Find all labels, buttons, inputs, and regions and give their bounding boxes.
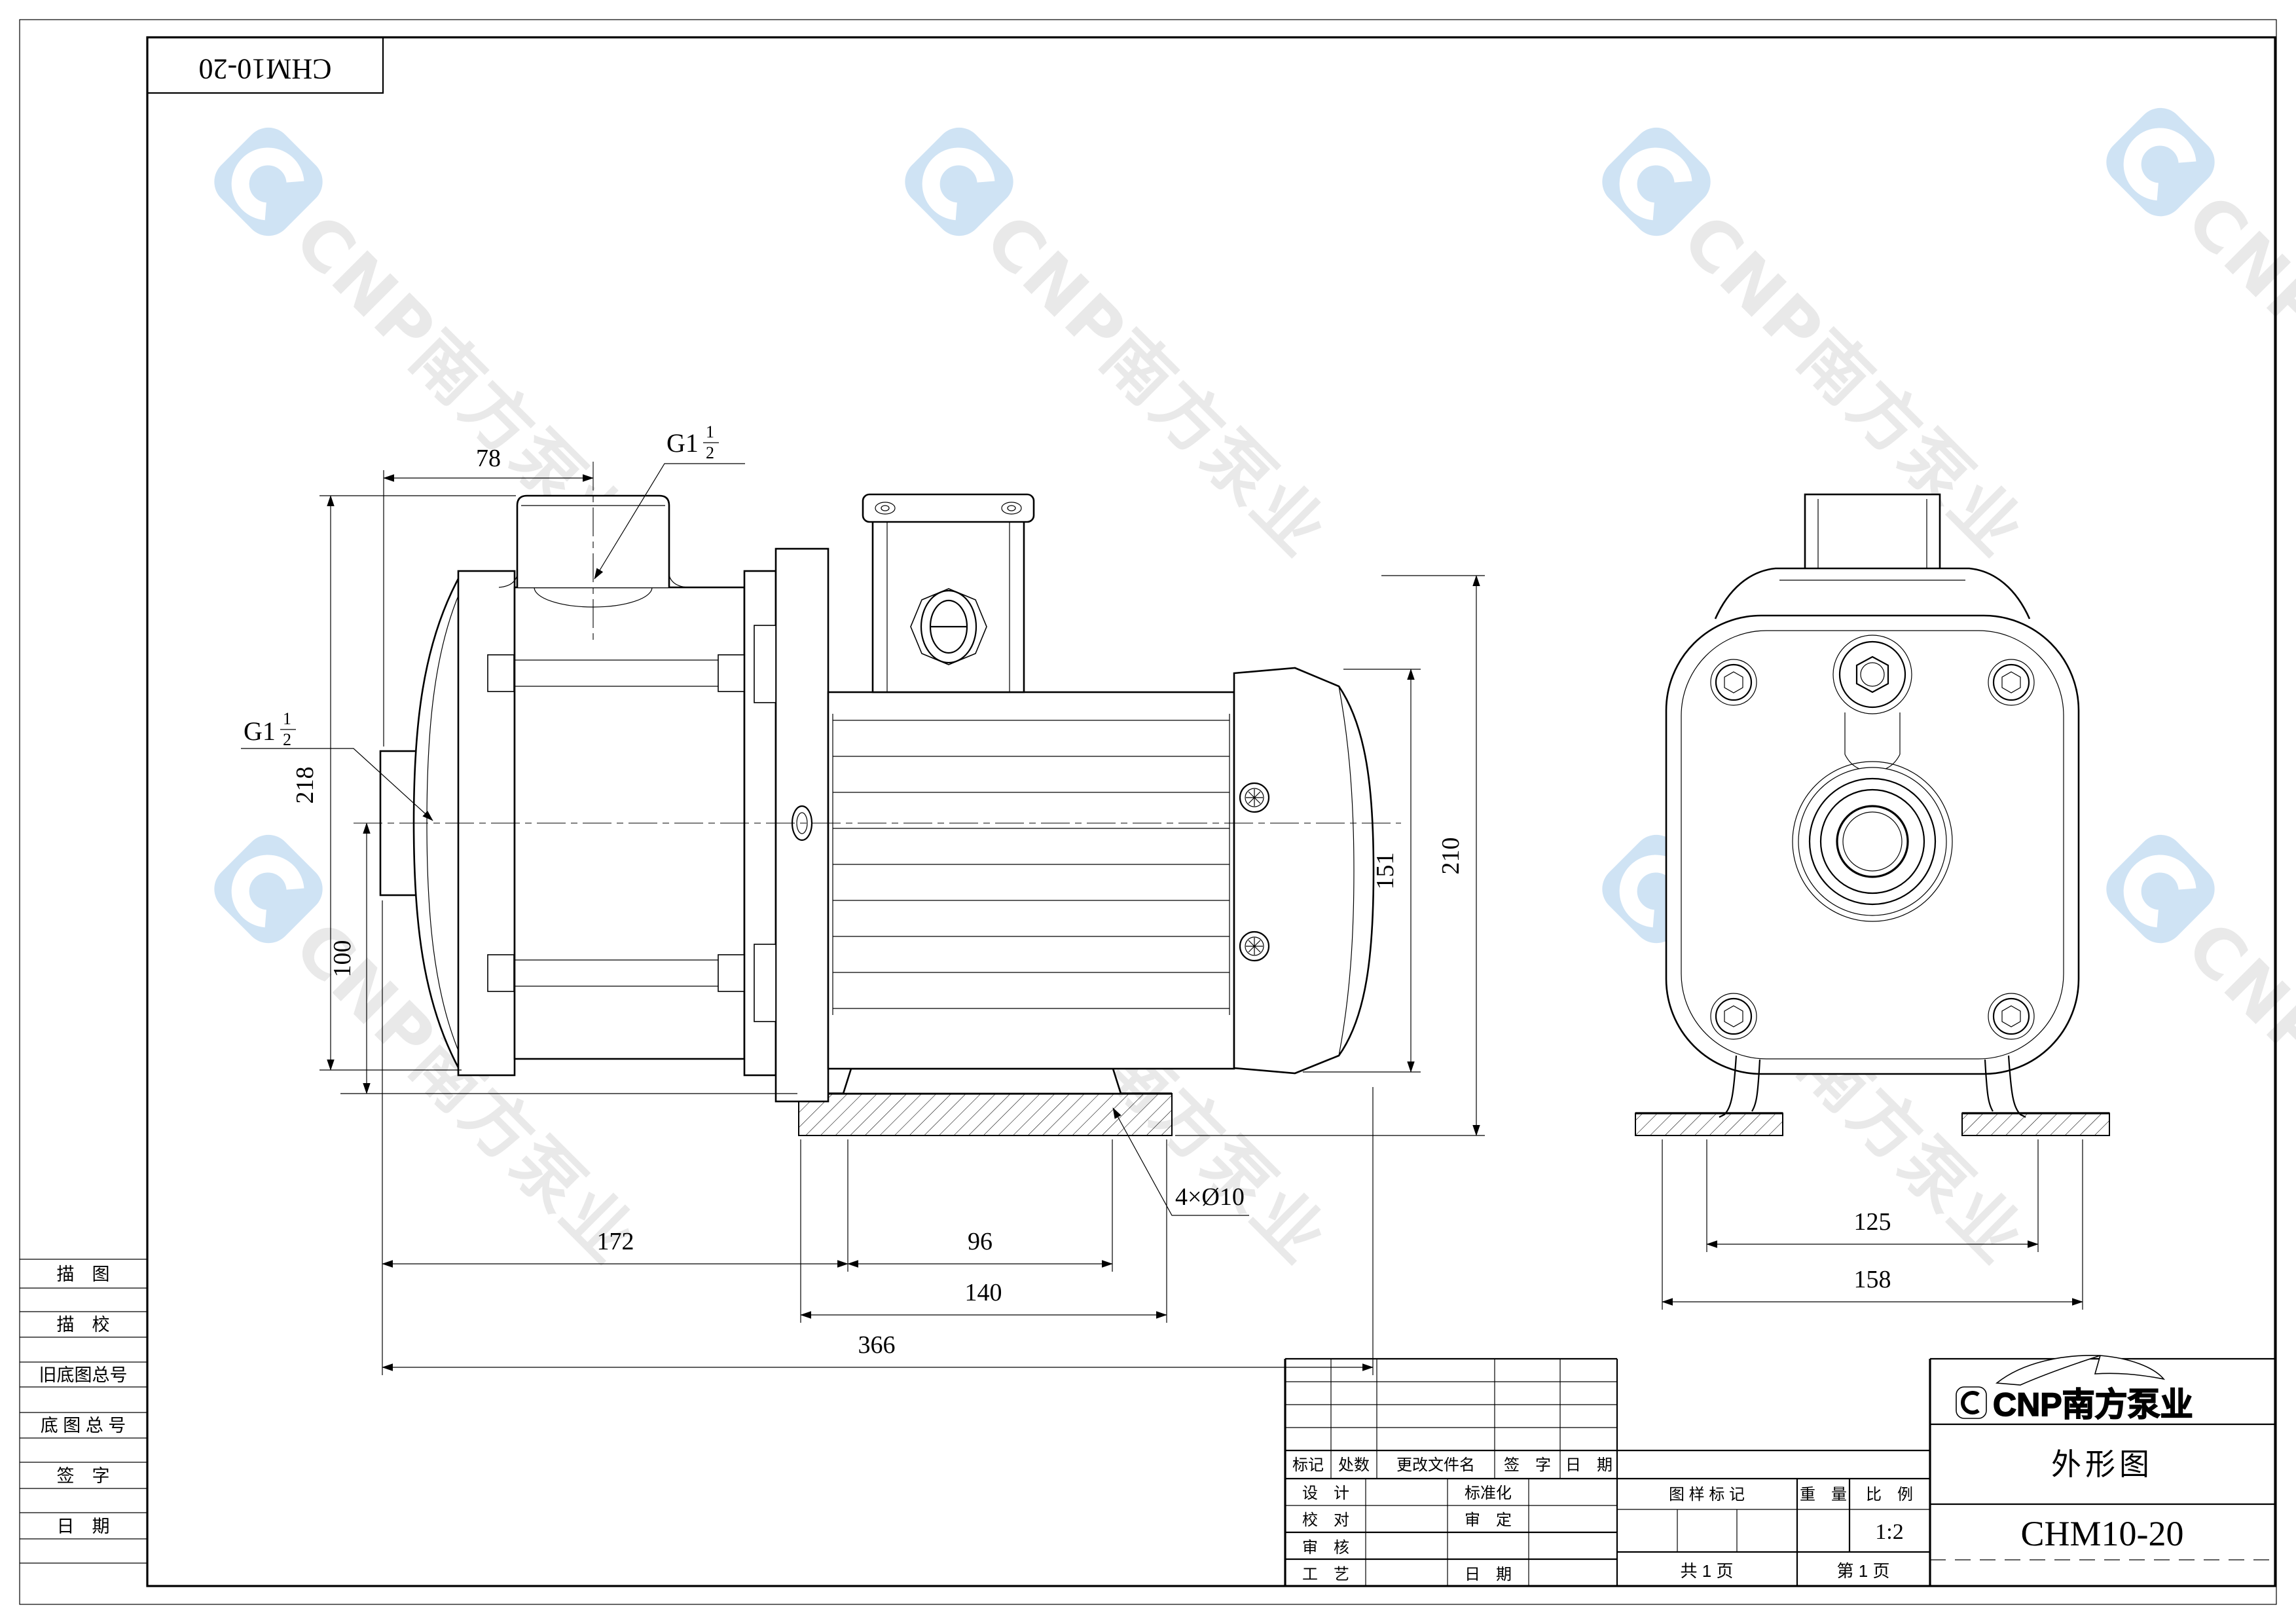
left-table-row-label: 日 期 (57, 1517, 110, 1536)
cnp-logo-text: CNP南方泵业 (1993, 1386, 2193, 1423)
form-check: 校 对 (1302, 1511, 1349, 1529)
brand-section: CNP南方泵业 外形图 CHM10-20 (1930, 1356, 2275, 1560)
dim-172: 172 (597, 1228, 634, 1255)
title-block: 标记 处数 更改文件名 签 字 日 期 设 计 校 对 审 核 工 艺 标准化 … (1285, 1356, 2275, 1586)
revision-header-mark: 标记 (1292, 1456, 1324, 1474)
watermark: CNP南方泵业 (2096, 98, 2296, 553)
left-table-row-label: 旧底图总号 (39, 1365, 128, 1385)
cnp-logo: CNP南方泵业 (1956, 1356, 2193, 1423)
dim-366: 366 (858, 1331, 896, 1359)
pump-end-view (1635, 494, 2109, 1135)
stamp-page-no: 第 1 页 (1837, 1561, 1890, 1581)
revision-header-file: 更改文件名 (1396, 1456, 1475, 1474)
doc-title: 外形图 (2051, 1447, 2153, 1481)
model-number: CHM10-20 (2020, 1514, 2183, 1553)
revision-header-date: 日 期 (1565, 1456, 1613, 1474)
left-table-row-label: 描 校 (57, 1315, 110, 1335)
dim-158: 158 (1854, 1266, 1891, 1293)
dim-100: 100 (329, 940, 356, 978)
form-standard: 标准化 (1465, 1485, 1512, 1502)
watermark-text: CNP南方泵业 (2171, 906, 2296, 1280)
stamp-total-pages: 共 1 页 (1681, 1561, 1734, 1581)
stamp-section: 图 样 标 记 重 量 比 例 1:2 共 1 页 第 1 页 (1617, 1479, 1930, 1586)
stamp-scale-header: 比 例 (1866, 1486, 1913, 1504)
adapter-lantern (776, 549, 828, 1101)
left-table-row-label: 底 图 总 号 (41, 1416, 126, 1435)
casing-silhouette (1715, 568, 2030, 619)
dim-g-top-num: 1 (706, 422, 714, 441)
dim-g-top: G1 (666, 428, 699, 458)
dim-218: 218 (291, 767, 319, 804)
sheet-code-text: CHM10-20 (199, 53, 332, 85)
form-design: 设 计 (1302, 1485, 1349, 1502)
left-table-row-label: 描 图 (57, 1264, 110, 1284)
dim-140: 140 (965, 1279, 1002, 1306)
stamp-mark-header: 图 样 标 记 (1669, 1486, 1745, 1504)
fan-cover (1234, 668, 1374, 1073)
stamp-weight-header: 重 量 (1800, 1486, 1847, 1504)
terminal-box (863, 494, 1034, 692)
base-plate (799, 1094, 1172, 1135)
dim-holes: 4×Ø10 (1175, 1183, 1245, 1211)
dim-g-left: G1 (244, 716, 276, 746)
signature-form: 设 计 校 对 审 核 工 艺 标准化 审 定 日 期 (1285, 1479, 1617, 1586)
cable-gland (911, 589, 987, 665)
cad-canvas: CNP南方泵业 CNP南方泵业 CNP南方泵业 CNP南方泵业 CNP南方泵业 … (0, 0, 2296, 1624)
watermark-text: CNP南方泵业 (2171, 179, 2296, 553)
dim-g-left-num: 1 (283, 709, 291, 728)
dim-96: 96 (968, 1228, 993, 1255)
drawing-sheet: CNP南方泵业 CNP南方泵业 CNP南方泵业 CNP南方泵业 CNP南方泵业 … (0, 0, 2296, 1624)
form-date: 日 期 (1465, 1566, 1512, 1583)
pump-face (1666, 616, 2079, 1074)
form-review: 审 核 (1302, 1539, 1349, 1557)
left-margin-table: 描 图 描 校 旧底图总号 底 图 总 号 签 字 日 期 (20, 1259, 147, 1563)
stamp-scale-value: 1:2 (1875, 1520, 1903, 1544)
revision-table: 标记 处数 更改文件名 签 字 日 期 (1285, 1359, 1930, 1479)
form-process: 工 艺 (1302, 1566, 1349, 1583)
watermark: CNP南方泵业 (2096, 825, 2296, 1280)
dim-210: 210 (1437, 838, 1465, 875)
left-table-row-label: 签 字 (57, 1466, 110, 1486)
motor-body (828, 692, 1234, 1069)
dim-125: 125 (1854, 1208, 1891, 1236)
revision-header-sign: 签 字 (1504, 1456, 1551, 1474)
dim-151: 151 (1372, 853, 1399, 890)
dim-g-left-den: 2 (283, 730, 291, 749)
pump-side-view (354, 462, 1401, 1135)
form-approve: 审 定 (1465, 1511, 1512, 1529)
revision-header-count: 处数 (1338, 1456, 1370, 1474)
dim-g-top-den: 2 (706, 443, 714, 462)
motor-foot (843, 1069, 1121, 1094)
dim-78: 78 (476, 445, 501, 472)
